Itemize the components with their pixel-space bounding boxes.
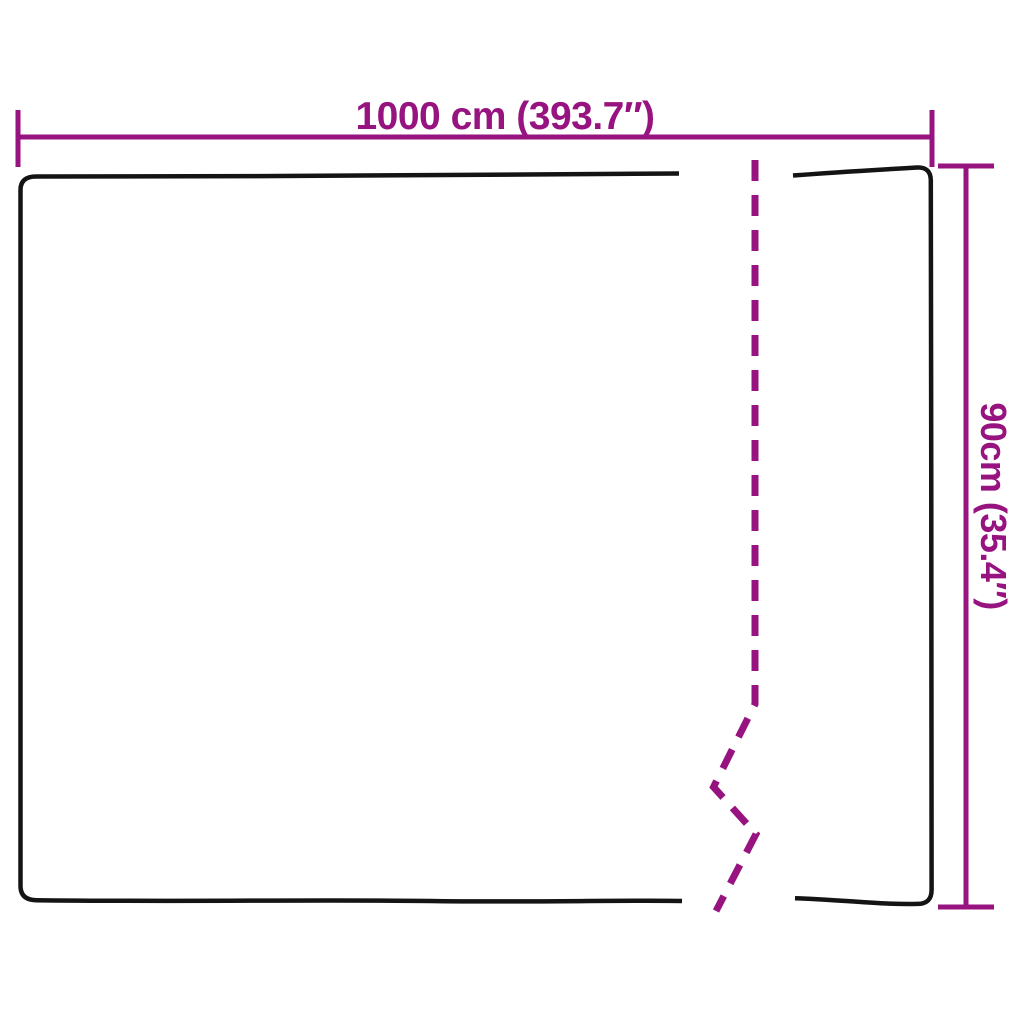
width-dimension: 1000 cm (393.7″) (18, 95, 932, 167)
width-dimension-label: 1000 cm (393.7″) (355, 95, 654, 138)
material-break-dashed-line (714, 160, 757, 911)
diagram-canvas: 1000 cm (393.7″) 90cm (35.4″) (0, 0, 1024, 1024)
product-outline-left-segment (21, 174, 683, 902)
product-dimension-diagram: 1000 cm (393.7″) 90cm (35.4″) (0, 0, 1024, 1024)
height-dimension-label: 90cm (35.4″) (973, 402, 1014, 609)
product-outline-right-segment (793, 167, 932, 904)
height-dimension: 90cm (35.4″) (938, 166, 1014, 907)
